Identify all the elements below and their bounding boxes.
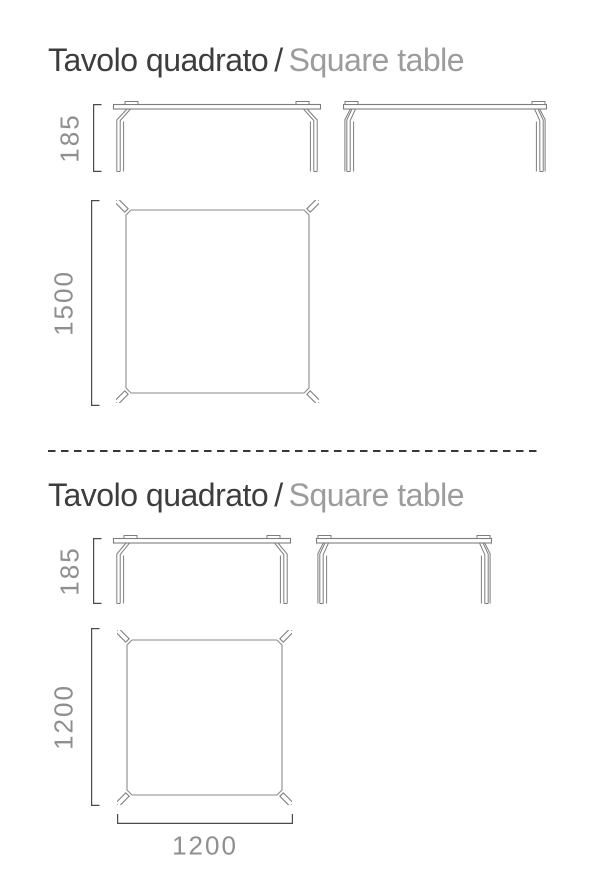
height-dimension-label: 185 (55, 546, 86, 595)
plan-width-dimension-label: 1200 (172, 831, 238, 862)
table-front-view (112, 534, 292, 605)
plan-depth-dimension-label: 1200 (49, 684, 80, 750)
title-english: Square table (289, 477, 464, 513)
title-separator: / (274, 477, 282, 513)
height-dimension-bracket (93, 538, 102, 604)
plan-depth-dimension-bracket (91, 628, 100, 806)
title-italian: Tavolo quadrato (48, 42, 268, 78)
section-title: Tavolo quadrato/Square table (48, 44, 464, 78)
table-plan-view (116, 200, 319, 403)
table-side-view (342, 100, 548, 173)
plan-depth-dimension-label: 1500 (49, 270, 80, 336)
table-front-view (112, 100, 322, 173)
height-dimension-label: 185 (55, 113, 86, 162)
spec-sheet-page: Tavolo quadrato/Square table 185 1500 Ta… (0, 0, 600, 890)
title-separator: / (274, 42, 282, 78)
title-english: Square table (289, 42, 464, 78)
dashed-divider (48, 449, 540, 453)
plan-depth-dimension-bracket (91, 200, 100, 406)
title-italian: Tavolo quadrato (48, 477, 268, 513)
section-title: Tavolo quadrato/Square table (48, 479, 464, 513)
height-dimension-bracket (93, 104, 102, 172)
plan-width-dimension-bracket (117, 814, 293, 824)
table-plan-view (117, 630, 292, 805)
table-side-view (315, 534, 493, 605)
